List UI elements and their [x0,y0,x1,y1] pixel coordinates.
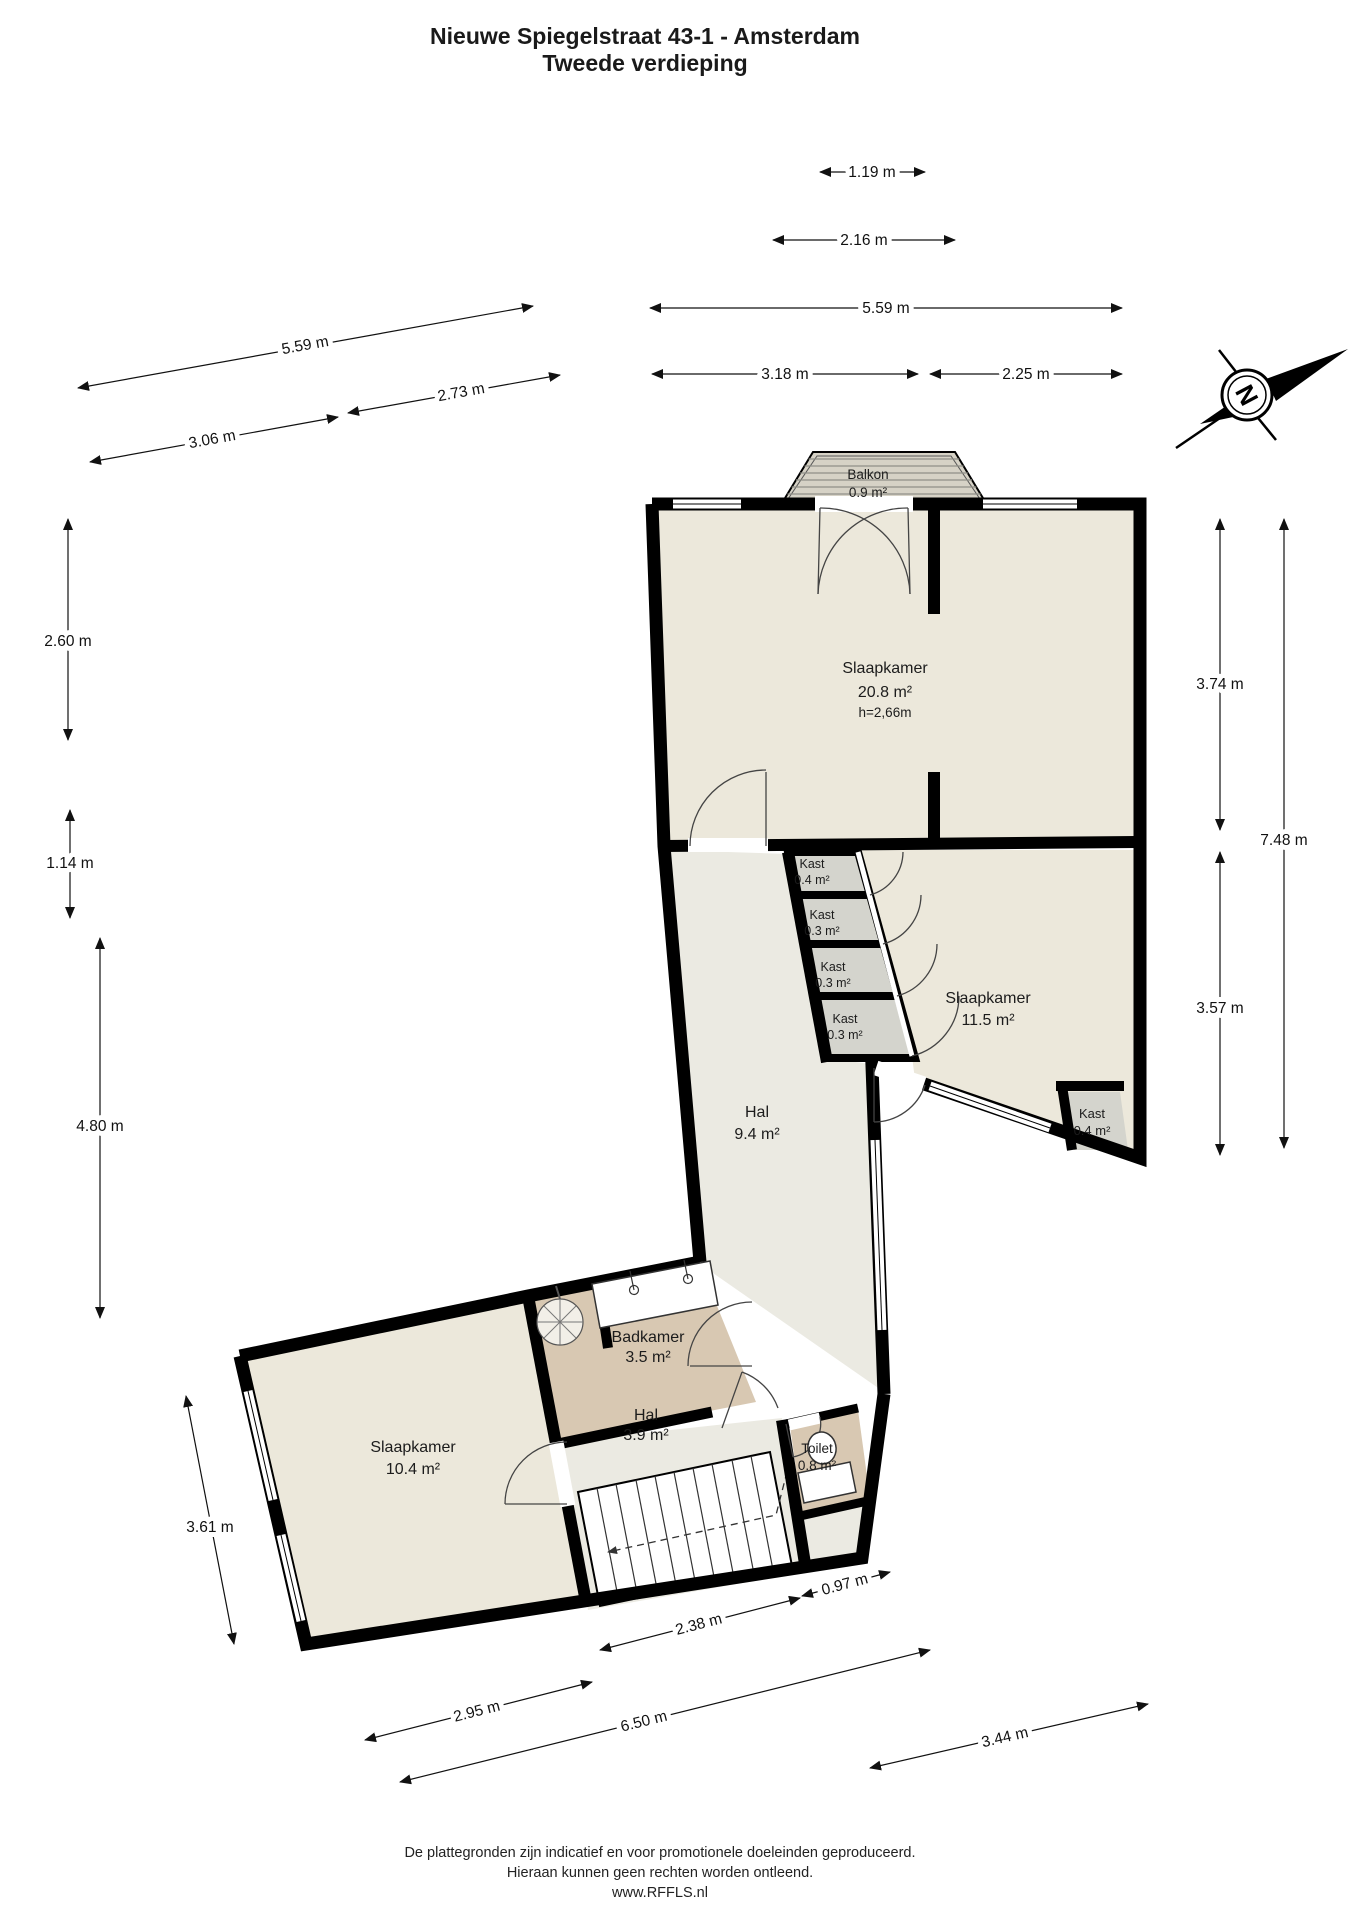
footer-disclaimer-line2: Hieraan kunnen geen rechten worden ontle… [507,1865,813,1881]
dim-bottom-5: 3.44 m [980,1724,1030,1751]
label-kast2-area: 0.3 m² [804,924,839,938]
label-kast04r-area: 0.4 m² [1074,1123,1112,1138]
dim-left-v1: 2.60 m [44,633,91,650]
floor-plan-drawing: Nieuwe Spiegelstraat 43-1 - Amsterdam Tw… [0,0,1358,1920]
dim-left-v2: 1.14 m [46,855,93,872]
dim-right-v1: 3.74 m [1196,676,1243,693]
dim-bottom-3: 2.95 m [452,1698,502,1726]
label-slaapkamer104-name: Slaapkamer [370,1439,456,1456]
dim-left-v3: 4.80 m [76,1118,123,1135]
label-kast2-name: Kast [809,908,835,922]
dim-balkon-top: 1.19 m [848,164,895,181]
dim-left-v4: 3.61 m [186,1519,233,1536]
label-kast3-name: Kast [820,960,846,974]
footer: De plattegronden zijn indicatief en voor… [404,1845,915,1901]
label-badkamer-area: 3.5 m² [625,1349,671,1366]
label-slaapkamer115-name: Slaapkamer [945,990,1031,1007]
dim-top-left: 3.18 m [761,366,808,383]
label-slaapkamer104-area: 10.4 m² [386,1461,441,1478]
label-slaapkamer20-height: h=2,66m [859,705,912,720]
dim-right-v2: 7.48 m [1260,832,1307,849]
compass: N [1176,349,1348,448]
label-toilet-name: Toilet [801,1441,833,1456]
label-slaapkamer20-area: 20.8 m² [858,684,913,701]
label-badkamer-name: Badkamer [612,1329,686,1346]
label-hal94-area: 9.4 m² [734,1126,780,1143]
label-hal94-name: Hal [745,1104,769,1121]
dim-bottom-1: 0.97 m [820,1570,870,1599]
floorplan-page: Nieuwe Spiegelstraat 43-1 - Amsterdam Tw… [0,0,1358,1920]
label-kast3-area: 0.3 m² [815,976,850,990]
page-subtitle: Tweede verdieping [542,50,747,76]
label-balkon-area: 0.9 m² [849,485,888,500]
label-kast04r-name: Kast [1079,1106,1105,1121]
label-toilet-area: 0.8 m² [798,1458,837,1473]
label-balkon-name: Balkon [847,467,888,482]
dim-upper-left-total: 5.59 m [280,333,330,358]
label-hal39-name: Hal [634,1407,658,1424]
dim-bottom-2: 2.38 m [674,1610,724,1638]
dim-right-v3: 3.57 m [1196,1000,1243,1017]
footer-website: www.RFFLS.nl [611,1885,708,1901]
label-kast4-area: 0.3 m² [827,1028,862,1042]
dim-lower-left-inner: 3.06 m [187,427,237,452]
compass-needle-icon [1266,349,1348,401]
dim-top-total: 5.59 m [862,300,909,317]
label-slaapkamer115-area: 11.5 m² [961,1012,1015,1029]
dim-balkon-base: 2.16 m [840,232,887,249]
label-kast1-area: 0.4 m² [794,873,829,887]
dim-upper-left-inner: 2.73 m [436,380,486,405]
label-kast4-name: Kast [832,1012,858,1026]
page-title: Nieuwe Spiegelstraat 43-1 - Amsterdam [430,23,860,49]
footer-disclaimer-line1: De plattegronden zijn indicatief en voor… [404,1845,915,1861]
label-slaapkamer20-name: Slaapkamer [842,660,928,677]
dim-bottom-4: 6.50 m [619,1708,669,1736]
label-hal39-area: 3.9 m² [623,1427,669,1444]
label-kast1-name: Kast [799,857,825,871]
dim-top-right: 2.25 m [1002,366,1049,383]
